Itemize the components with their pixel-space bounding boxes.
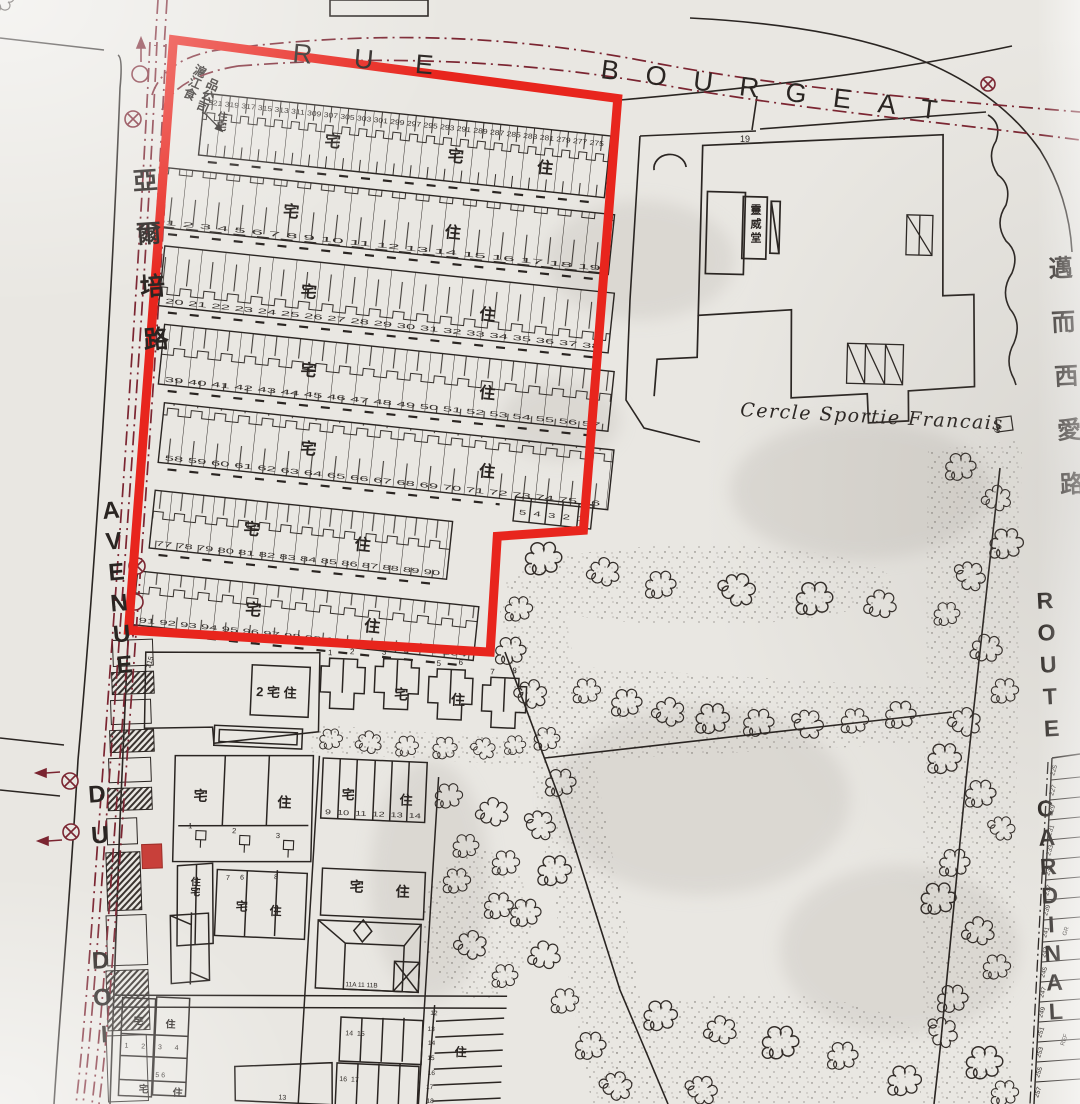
svg-text:住: 住 xyxy=(536,157,554,178)
svg-text:宅: 宅 xyxy=(244,599,262,620)
villa11-label: 11A 11 11B xyxy=(345,981,377,989)
svg-text:宅: 宅 xyxy=(300,360,318,381)
svg-text:14: 14 xyxy=(428,1040,436,1047)
svg-text:18: 18 xyxy=(426,1098,434,1104)
svg-text:7: 7 xyxy=(490,667,495,676)
label-215: 215 xyxy=(145,656,155,669)
row-14-15: 14 15 xyxy=(345,1030,365,1038)
strip-zhai: 宅 xyxy=(133,1014,144,1027)
svg-text:住: 住 xyxy=(478,383,496,404)
svg-text:7: 7 xyxy=(226,875,230,882)
route-label: ROUTE xyxy=(1031,587,1065,748)
lots-zhai: 宅 xyxy=(341,787,355,803)
svg-text:住: 住 xyxy=(478,461,496,482)
crossed-circle-icon xyxy=(981,77,995,91)
strip-zhu: 住 xyxy=(165,1017,176,1030)
svg-text:5: 5 xyxy=(436,659,441,668)
wedge-zhuzhai: 住宅 xyxy=(188,875,201,897)
lots-zhu: 住 xyxy=(399,792,413,808)
strip1218-zhu: 住 xyxy=(454,1044,467,1060)
tiny-1-4: 1 2 3 4 xyxy=(124,1043,178,1052)
label-13: 13 xyxy=(278,1094,286,1101)
svg-text:宅: 宅 xyxy=(299,438,317,459)
avenue-du-label: DU xyxy=(83,780,116,864)
svg-text:6: 6 xyxy=(240,875,244,882)
svg-text:8: 8 xyxy=(274,874,278,881)
svg-text:1: 1 xyxy=(328,648,333,657)
svg-text:2: 2 xyxy=(232,826,237,835)
north-building xyxy=(330,0,428,16)
scanned-map-page: 靈威堂 Cercle Sportie Francais 19 68 xyxy=(0,0,1080,1104)
svg-text:宅: 宅 xyxy=(282,201,300,222)
strip2-zhu: 住 xyxy=(172,1086,183,1099)
chapel-label: 靈威堂 xyxy=(749,204,762,246)
block3-zhu: 住 xyxy=(277,794,292,811)
roof-hatch-icon xyxy=(847,213,933,385)
svg-text:宅: 宅 xyxy=(447,146,465,167)
block3-zhai: 宅 xyxy=(193,787,208,804)
svg-text:15: 15 xyxy=(427,1055,435,1062)
villa-zhu: 住 xyxy=(451,692,466,709)
strip-12-18-numbers: 1213 1415 1617 18 xyxy=(424,1010,438,1104)
tiny-5-6: 5 6 xyxy=(155,1072,165,1079)
plot-number-19: 19 xyxy=(740,134,750,144)
svg-text:3: 3 xyxy=(276,831,281,840)
villa-zhai: 宅 xyxy=(394,686,409,703)
cardinal-cn-label: 邁而西愛路 xyxy=(1043,255,1080,526)
row-16-17: 16 17 xyxy=(339,1076,359,1084)
svg-text:17: 17 xyxy=(426,1084,434,1091)
svg-text:住: 住 xyxy=(354,534,372,555)
crossed-circle-icon xyxy=(63,824,79,840)
left-block-numbers: 768 xyxy=(226,872,278,884)
lowblock-zhai: 宅 xyxy=(349,878,364,895)
strip2-zhai: 宅 xyxy=(138,1082,149,1095)
crossed-circle-icon xyxy=(62,773,78,789)
map-canvas: 靈威堂 Cercle Sportie Francais 19 68 xyxy=(0,0,1080,1104)
leftblock-zhai: 宅 xyxy=(235,898,248,914)
svg-text:住: 住 xyxy=(363,616,381,637)
stop-circle-icon xyxy=(132,66,148,82)
svg-text:13: 13 xyxy=(427,1026,435,1033)
cardinal-label: CARDINAL xyxy=(1032,795,1070,1028)
svg-text:住: 住 xyxy=(444,222,462,243)
plot2-label: 2 宅 住 xyxy=(256,684,297,701)
svg-text:225: 225 xyxy=(1049,764,1059,777)
svg-text:1: 1 xyxy=(188,821,193,830)
red-marked-building xyxy=(142,844,163,869)
svg-text:16: 16 xyxy=(428,1070,436,1077)
svg-text:12: 12 xyxy=(430,1010,438,1017)
svg-text:宅: 宅 xyxy=(300,281,318,302)
svg-text:宅: 宅 xyxy=(243,519,261,540)
villa-footprints xyxy=(319,656,528,729)
rue-label: RUE xyxy=(291,38,476,84)
leftblock-zhu: 住 xyxy=(269,903,282,919)
svg-text:住: 住 xyxy=(478,304,496,325)
lowblock-zhu: 住 xyxy=(395,883,410,900)
svg-text:宅: 宅 xyxy=(324,131,342,152)
crossed-circle-icon xyxy=(125,111,141,127)
